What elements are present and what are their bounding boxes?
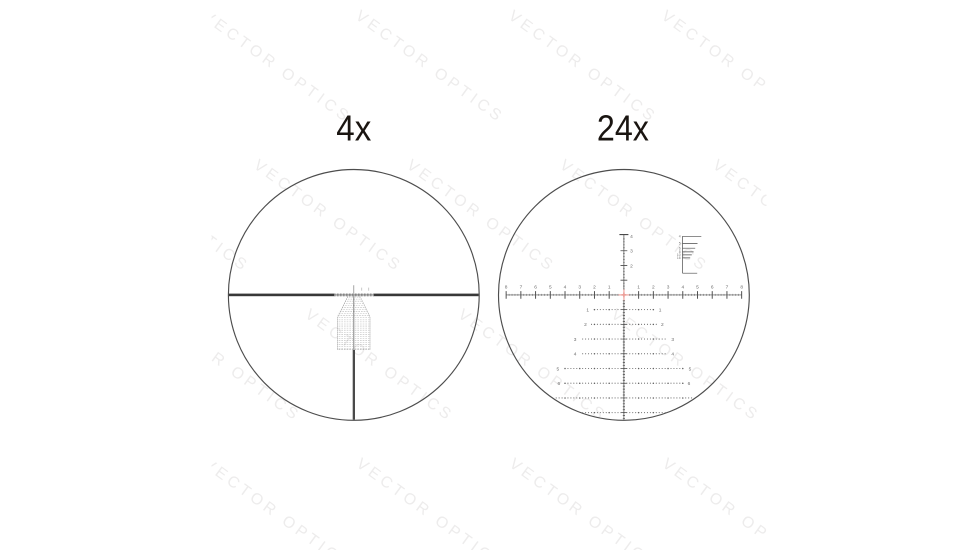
svg-text:3: 3 — [667, 285, 670, 291]
svg-text:3: 3 — [578, 285, 581, 291]
svg-text:2: 2 — [630, 263, 633, 269]
svg-text:6: 6 — [534, 285, 537, 291]
svg-text:1: 1 — [659, 307, 662, 313]
svg-text:5: 5 — [696, 285, 699, 291]
svg-text:4: 4 — [630, 234, 633, 240]
svg-text:3: 3 — [671, 337, 674, 343]
svg-text:3: 3 — [574, 337, 577, 343]
svg-text:8: 8 — [740, 285, 743, 291]
svg-text:5: 5 — [689, 366, 692, 372]
svg-text:24x: 24x — [597, 108, 649, 149]
svg-text:2: 2 — [661, 322, 664, 328]
svg-text:4: 4 — [681, 285, 684, 291]
svg-text:6: 6 — [711, 285, 714, 291]
svg-text:6: 6 — [688, 381, 691, 387]
svg-text:8: 8 — [505, 285, 508, 291]
svg-text:2: 2 — [593, 285, 596, 291]
svg-text:3: 3 — [630, 249, 633, 255]
svg-text:5: 5 — [549, 285, 552, 291]
svg-text:2: 2 — [584, 322, 587, 328]
svg-text:7: 7 — [726, 285, 729, 291]
svg-text:1: 1 — [586, 307, 589, 313]
svg-text:6: 6 — [558, 381, 561, 387]
svg-text:4: 4 — [671, 352, 674, 358]
svg-text:4: 4 — [679, 235, 681, 239]
svg-text:5: 5 — [557, 366, 560, 372]
svg-text:16: 16 — [677, 256, 681, 260]
svg-text:1: 1 — [608, 285, 611, 291]
svg-text:7: 7 — [520, 285, 523, 291]
svg-text:5: 5 — [679, 242, 681, 246]
svg-text:2: 2 — [652, 285, 655, 291]
svg-text:4: 4 — [564, 285, 567, 291]
svg-text:4: 4 — [574, 352, 577, 358]
svg-text:4x: 4x — [336, 108, 371, 149]
svg-text:1: 1 — [637, 285, 640, 291]
